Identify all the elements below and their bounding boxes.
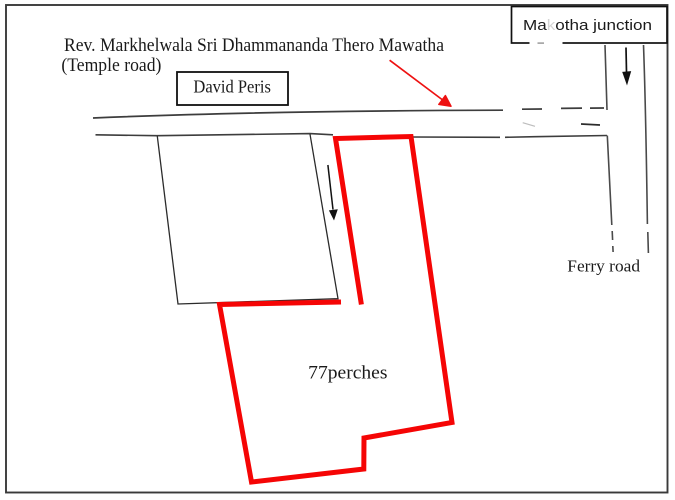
svg-text:David Peris: David Peris bbox=[193, 77, 271, 97]
svg-text:Rev. Markhelwala Sri Dhammanan: Rev. Markhelwala Sri Dhammananda Thero M… bbox=[64, 36, 444, 56]
svg-text:Makotha junction: Makotha junction bbox=[523, 17, 652, 34]
svg-text:Ferry road: Ferry road bbox=[567, 256, 640, 275]
svg-text:(Temple road): (Temple road) bbox=[61, 56, 161, 76]
svg-text:77perches: 77perches bbox=[308, 362, 387, 383]
